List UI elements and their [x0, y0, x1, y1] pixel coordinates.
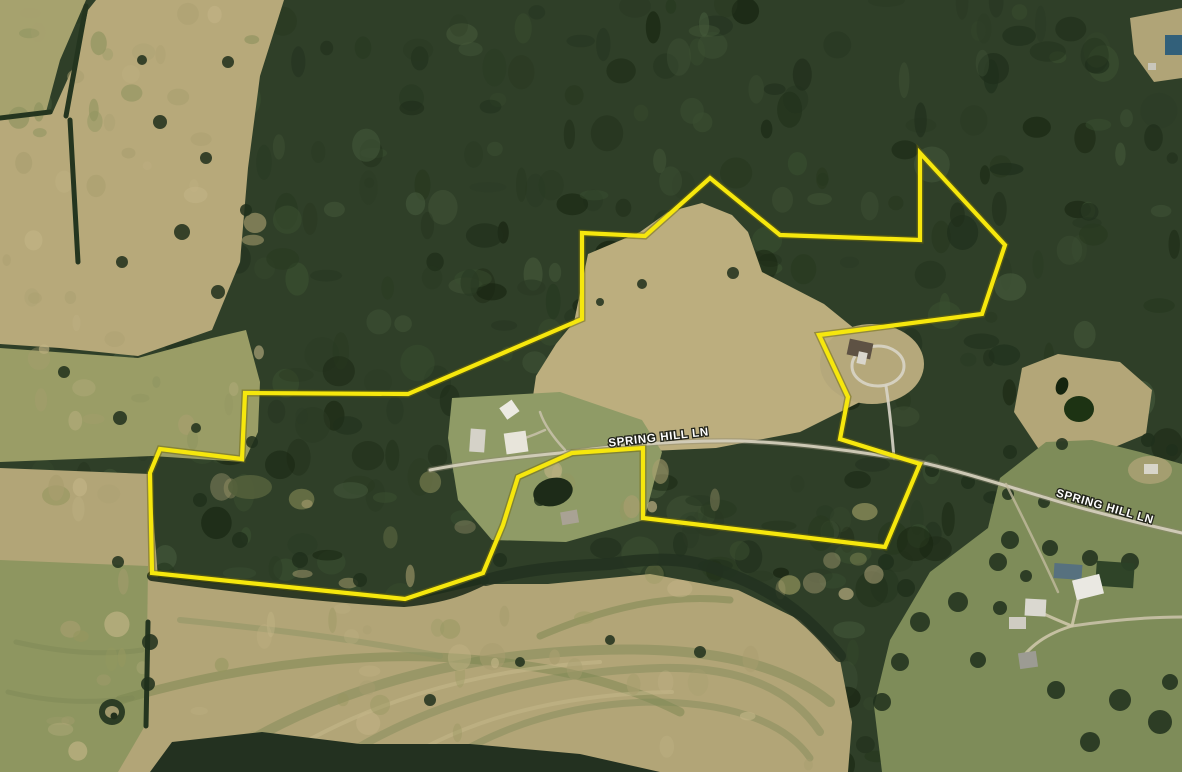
building-top-right-blue	[1165, 35, 1182, 55]
building-barn-big	[504, 431, 529, 455]
pond-right-large	[1064, 396, 1094, 422]
pond-left-thicket	[228, 475, 272, 499]
building-barn-left	[469, 429, 486, 453]
satellite-map[interactable]: SPRING HILL LNSPRING HILL LN	[0, 0, 1182, 772]
building-blue-barn	[1053, 563, 1082, 580]
building-white-house	[1025, 598, 1047, 616]
building-top-right-shed	[1148, 63, 1156, 70]
pond-ring-core	[111, 713, 118, 720]
building-gray-house	[1018, 651, 1038, 669]
building-roadside-house	[1144, 464, 1158, 474]
building-white-shed	[1009, 617, 1026, 629]
map-viewport[interactable]: SPRING HILL LNSPRING HILL LN	[0, 0, 1182, 772]
